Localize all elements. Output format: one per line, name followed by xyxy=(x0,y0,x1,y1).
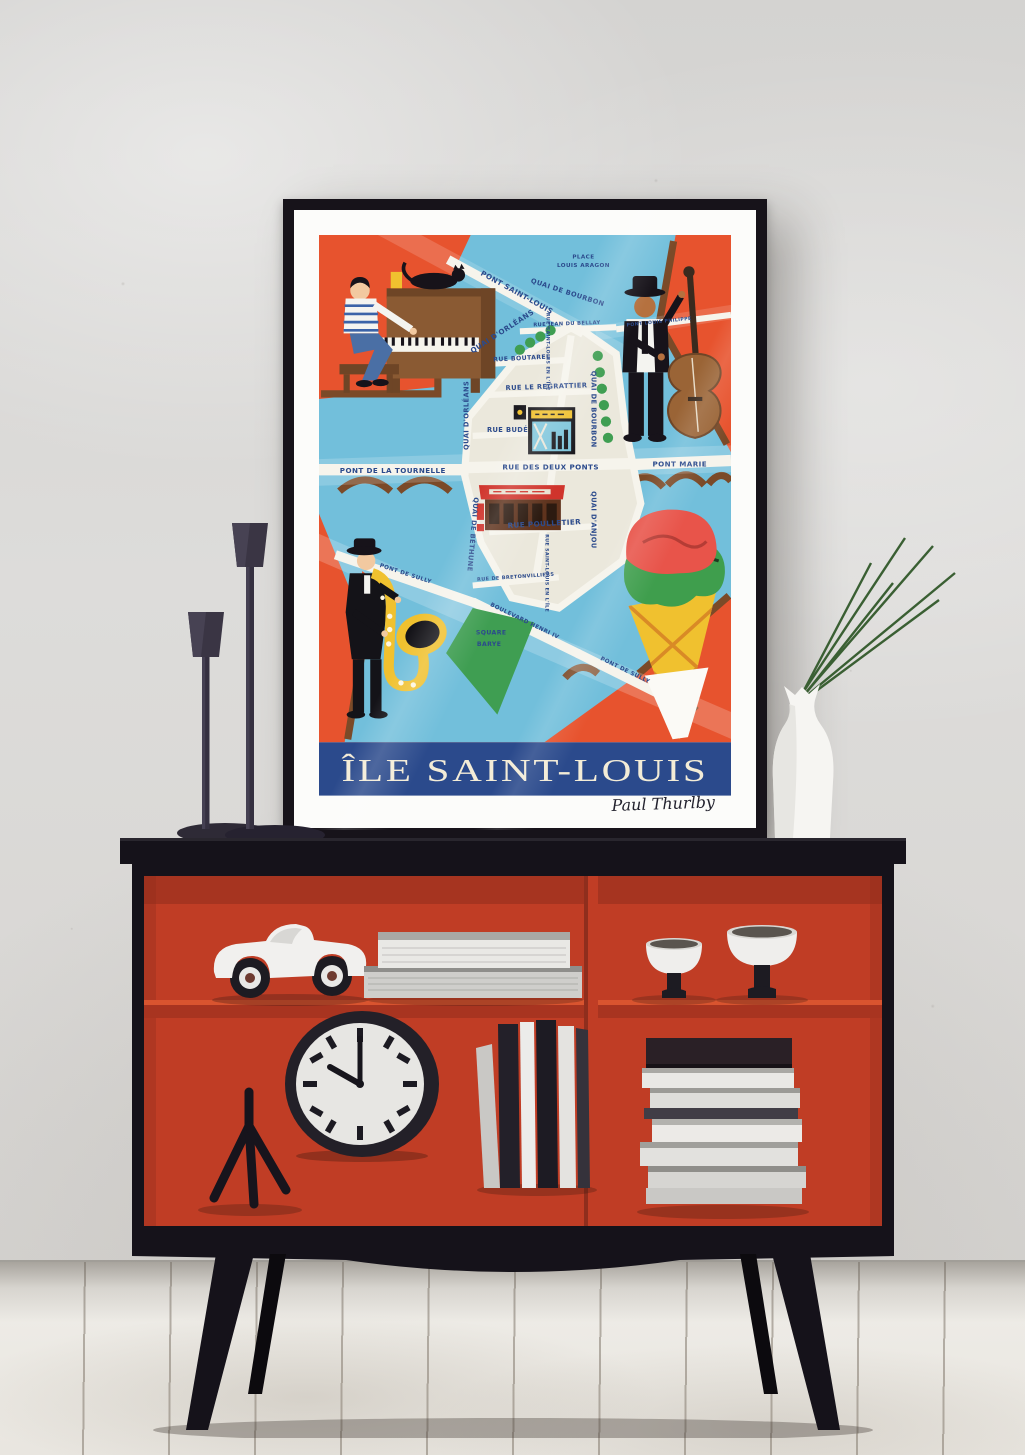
white-vase-with-grass xyxy=(755,528,1005,848)
label-square-barye-1: SQUARE xyxy=(476,630,507,637)
toy-race-car xyxy=(208,914,373,1006)
stack-of-books xyxy=(632,1030,814,1220)
label-rue-bude: RUE BUDÉ xyxy=(487,425,528,434)
label-quai-de-bourbon-vertical: QUAI DE BOURBON xyxy=(590,371,598,448)
short-candlestick xyxy=(188,612,224,829)
label-place-louis-aragon-1: PLACE xyxy=(572,255,594,261)
frame-mat: PONT SAINT-LOUIS PLACE LOUIS ARAGON QUAI… xyxy=(294,210,756,828)
poster-title: ÎLE SAINT-LOUIS xyxy=(342,753,709,788)
back-left-leg xyxy=(248,1254,286,1394)
two-pedestal-bowls xyxy=(624,902,810,1006)
picture-frame: PONT SAINT-LOUIS PLACE LOUIS ARAGON QUAI… xyxy=(283,199,767,839)
sideboard-top-slab xyxy=(120,838,906,864)
row-of-upright-books xyxy=(474,1008,600,1198)
scene: PONT SAINT-LOUIS PLACE LOUIS ARAGON QUAI… xyxy=(0,0,1025,1455)
front-right-leg xyxy=(772,1254,840,1430)
floor-shadow xyxy=(153,1418,873,1438)
poster: PONT SAINT-LOUIS PLACE LOUIS ARAGON QUAI… xyxy=(319,235,731,796)
front-left-leg xyxy=(186,1254,254,1430)
tall-candlestick xyxy=(232,523,268,829)
small-bowl xyxy=(646,938,702,998)
stack-of-two-books xyxy=(362,918,588,1006)
label-pont-marie: PONT MARIE xyxy=(652,460,707,469)
label-place-louis-aragon-2: LOUIS ARAGON xyxy=(557,263,610,269)
red-scoop xyxy=(626,510,717,574)
back-right-leg xyxy=(740,1254,778,1394)
grass-stems xyxy=(801,538,955,700)
round-clock xyxy=(280,1010,445,1164)
label-quai-dorleans-vertical: QUAI D'ORLÉANS xyxy=(462,381,471,450)
two-dark-candlesticks xyxy=(165,505,335,850)
label-rue-des-deux-ponts: RUE DES DEUX PONTS xyxy=(502,463,599,472)
label-quai-danjou: QUAI D'ANJOU xyxy=(590,491,598,549)
drink-glass xyxy=(391,272,402,288)
label-pont-de-la-tournelle: PONT DE LA TOURNELLE xyxy=(340,466,446,475)
large-bowl xyxy=(727,925,797,998)
label-square-barye-2: BARYE xyxy=(477,641,501,648)
